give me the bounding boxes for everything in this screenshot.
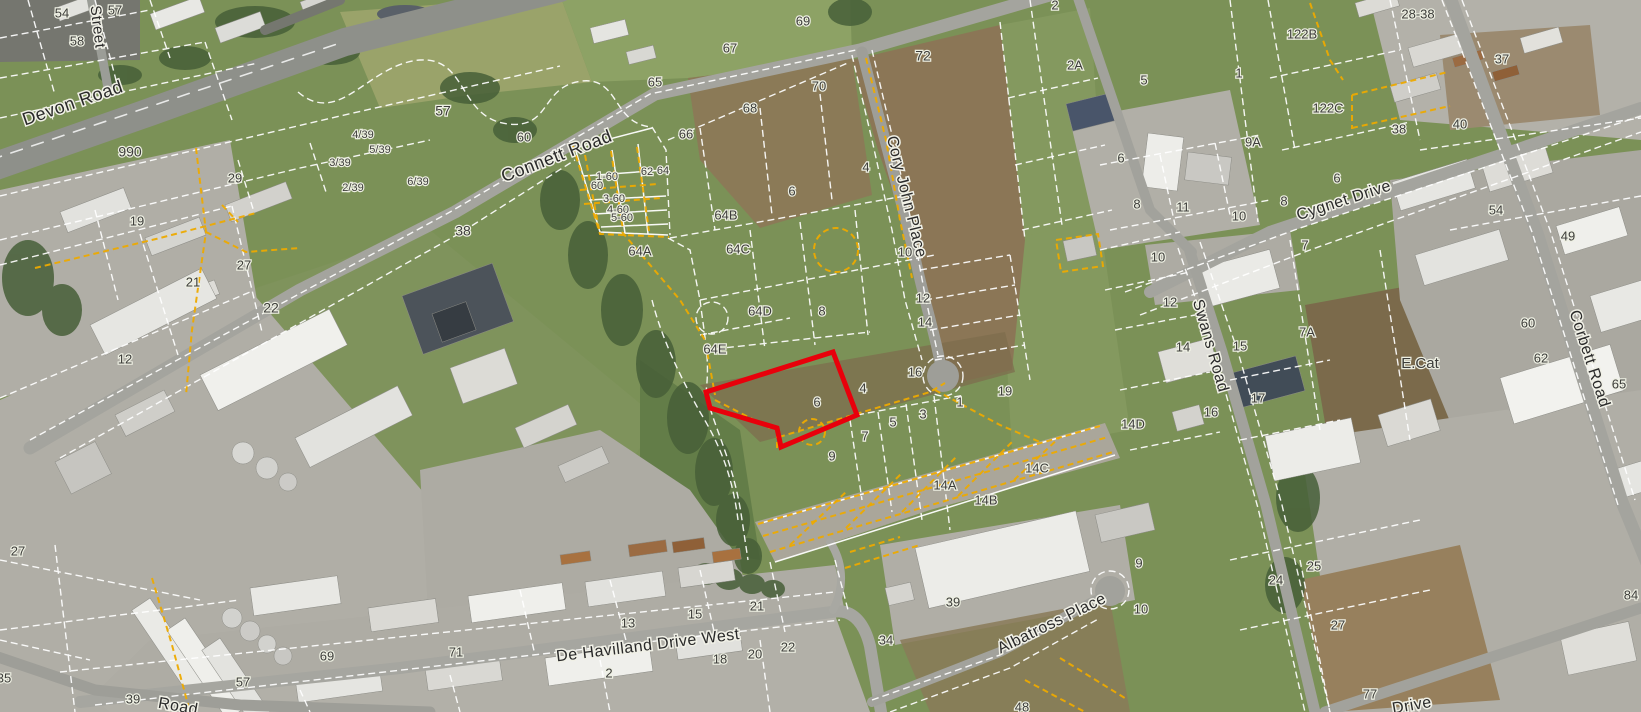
parcel-label: 25 bbox=[1307, 558, 1321, 573]
parcel-label: 4 bbox=[859, 380, 866, 395]
parcel-label: 35 bbox=[0, 670, 11, 685]
parcel-label: 67 bbox=[723, 40, 737, 55]
parcel-label: 77 bbox=[1363, 686, 1377, 701]
parcel-label: 48 bbox=[1015, 699, 1029, 712]
parcel-label: 6 bbox=[788, 183, 795, 198]
parcel-label: 2 bbox=[1051, 0, 1058, 12]
parcel-label: 6 bbox=[1333, 170, 1340, 185]
parcel-label: 37 bbox=[1495, 51, 1509, 66]
parcel-label: 122B bbox=[1287, 26, 1317, 41]
parcel-label: 64E bbox=[703, 341, 726, 356]
parcel-label: 57 bbox=[108, 2, 122, 17]
parcel-label: 13 bbox=[621, 615, 635, 630]
parcel-label: 2/39 bbox=[342, 182, 363, 194]
parcel-label: 64 bbox=[657, 165, 669, 177]
parcel-label: 66 bbox=[679, 126, 693, 141]
parcel-label: 60 bbox=[1521, 315, 1535, 330]
parcel-label: 11 bbox=[1176, 199, 1190, 214]
parcel-label: 24 bbox=[1269, 572, 1283, 587]
map-canvas: 5457589902919272122124/395/393/392/396/3… bbox=[0, 0, 1641, 712]
parcel-label: 64A bbox=[628, 243, 651, 258]
parcel-label: 1 bbox=[956, 394, 963, 409]
parcel-label: 64B bbox=[714, 207, 737, 222]
parcel-label: 14 bbox=[918, 314, 932, 329]
parcel-label: 84 bbox=[1624, 587, 1638, 602]
parcel-label: 60 bbox=[591, 180, 603, 192]
parcel-label: 4 bbox=[862, 159, 869, 174]
parcel-label: 15 bbox=[688, 606, 702, 621]
parcel-label: 7 bbox=[861, 428, 868, 443]
parcel-label: 8 bbox=[818, 303, 825, 318]
parcel-label: 49 bbox=[1561, 228, 1575, 243]
parcel-label: 10 bbox=[1232, 208, 1246, 223]
parcel-label: 69 bbox=[320, 648, 334, 663]
parcel-label: 9 bbox=[1135, 555, 1142, 570]
parcel-label: 18 bbox=[713, 651, 727, 666]
parcel-label: 69 bbox=[796, 13, 810, 28]
parcel-label: 5-60 bbox=[611, 212, 633, 224]
parcel-label: E.Cat bbox=[1401, 355, 1439, 372]
parcel-label: 7 bbox=[1301, 237, 1308, 252]
parcel-label: 64C bbox=[726, 241, 750, 256]
parcel-label: 9A bbox=[1245, 134, 1261, 149]
parcel-label: 14C bbox=[1025, 460, 1049, 475]
parcel-label: 62 bbox=[641, 166, 653, 178]
parcel-label: 5 bbox=[1140, 72, 1147, 87]
parcel-label: 71 bbox=[449, 644, 463, 659]
parcel-label: 3/39 bbox=[329, 157, 350, 169]
parcel-label: 6 bbox=[1117, 150, 1124, 165]
parcel-label: 65 bbox=[648, 74, 662, 89]
parcel-label: 27 bbox=[1331, 617, 1345, 632]
parcel-label: 39 bbox=[126, 691, 140, 706]
parcel-label: 12 bbox=[118, 351, 132, 366]
parcel-label: 15 bbox=[1233, 338, 1247, 353]
parcel-label: 62 bbox=[1534, 350, 1548, 365]
parcel-label: 34 bbox=[879, 632, 893, 647]
parcel-label: 65 bbox=[1612, 376, 1626, 391]
parcel-label: 22 bbox=[781, 639, 795, 654]
parcel-label: 2A bbox=[1067, 57, 1083, 72]
parcel-label: 6 bbox=[813, 394, 820, 409]
parcel-label: 21 bbox=[186, 274, 200, 289]
map-viewport[interactable]: 5457589902919272122124/395/393/392/396/3… bbox=[0, 0, 1641, 712]
parcel-label: 16 bbox=[908, 364, 922, 379]
parcel-label: 12 bbox=[1163, 294, 1177, 309]
parcel-label: 29 bbox=[228, 170, 242, 185]
parcel-label: 72 bbox=[915, 48, 931, 64]
parcel-label: 68 bbox=[743, 100, 757, 115]
parcel-label: 14 bbox=[1176, 339, 1190, 354]
parcel-label: 10 bbox=[1151, 249, 1165, 264]
parcel-label: 54 bbox=[55, 5, 69, 20]
parcel-label: 17 bbox=[1251, 390, 1265, 405]
parcel-label: 64D bbox=[748, 303, 772, 318]
parcel-label: 8 bbox=[1280, 193, 1287, 208]
parcel-label: 990 bbox=[118, 144, 142, 160]
parcel-label: 9 bbox=[828, 448, 835, 463]
parcel-label: 14D bbox=[1121, 416, 1145, 431]
parcel-label: 122C bbox=[1312, 100, 1343, 115]
parcel-label: 58 bbox=[70, 33, 84, 48]
parcel-label: 16 bbox=[1204, 404, 1218, 419]
parcel-label: 19 bbox=[998, 383, 1012, 398]
parcel-label: 70 bbox=[812, 78, 826, 93]
parcel-label: 5 bbox=[889, 414, 896, 429]
parcel-label: 57 bbox=[236, 674, 250, 689]
parcel-label: 14B bbox=[974, 492, 997, 507]
parcel-label: 1 bbox=[1235, 65, 1242, 80]
parcel-label: 14A bbox=[933, 477, 956, 492]
parcel-label: 5/39 bbox=[369, 144, 390, 156]
parcel-label: 4/39 bbox=[352, 129, 373, 141]
parcel-label: 28-38 bbox=[1401, 6, 1434, 21]
parcel-label: 60 bbox=[517, 129, 531, 144]
parcel-label: 57 bbox=[435, 103, 451, 119]
parcel-label: 21 bbox=[750, 598, 764, 613]
parcel-label: 38 bbox=[455, 223, 471, 239]
parcel-label: 38 bbox=[1392, 121, 1406, 136]
parcel-label: 10 bbox=[1134, 601, 1148, 616]
parcel-label: 54 bbox=[1489, 202, 1503, 217]
parcel-label: 12 bbox=[916, 290, 930, 305]
parcel-label: 27 bbox=[11, 543, 25, 558]
parcel-label: 7A bbox=[1299, 324, 1315, 339]
parcel-label: 39 bbox=[946, 594, 960, 609]
parcel-label: 8 bbox=[1133, 196, 1140, 211]
parcel-label: 20 bbox=[748, 646, 762, 661]
parcel-label: 40 bbox=[1453, 116, 1467, 131]
parcel-label: 22 bbox=[263, 300, 279, 316]
parcel-label: 3 bbox=[919, 406, 926, 421]
parcel-label: 19 bbox=[130, 213, 144, 228]
parcel-label: 27 bbox=[237, 257, 251, 272]
parcel-label: 2 bbox=[605, 665, 612, 680]
parcel-label: 6/39 bbox=[407, 176, 428, 188]
